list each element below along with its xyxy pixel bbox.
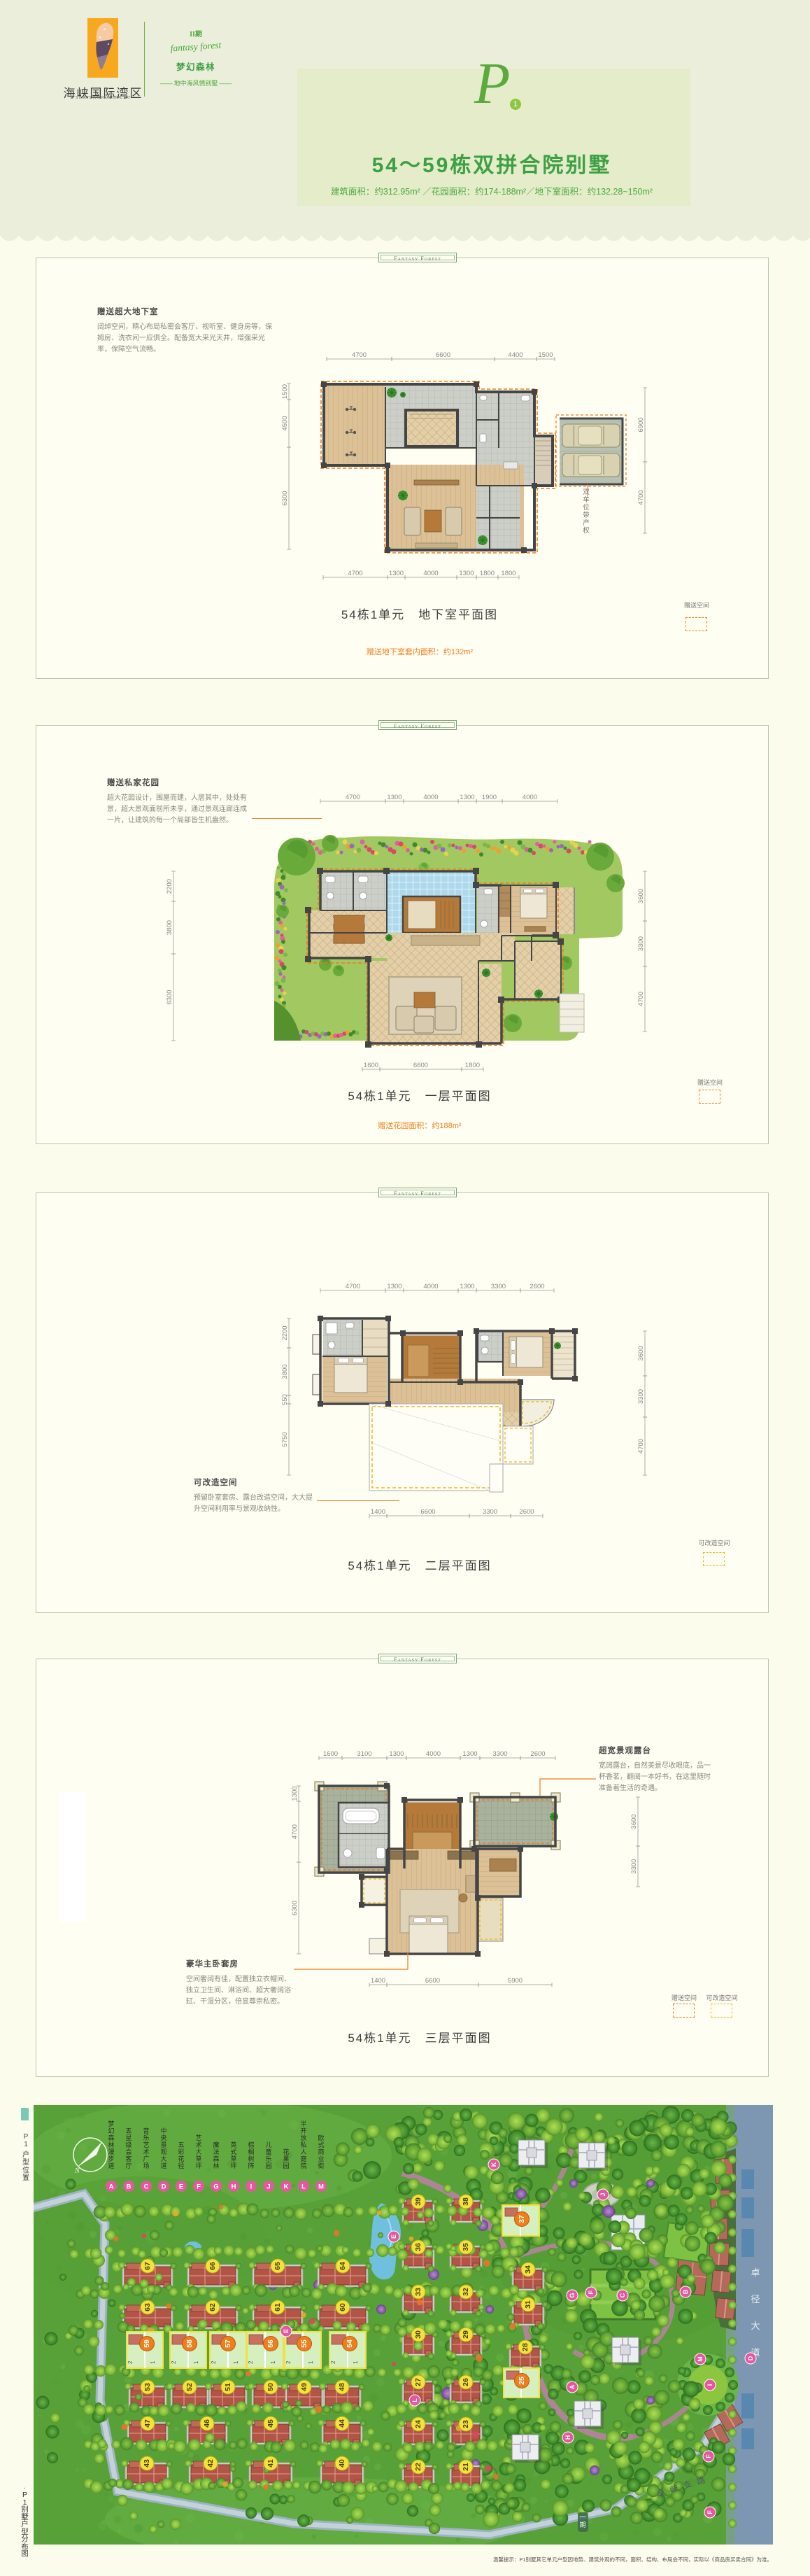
- svg-text:草: 草: [195, 2155, 201, 2162]
- svg-text:F: F: [706, 2510, 713, 2514]
- svg-text:1300: 1300: [389, 1750, 404, 1758]
- svg-text:坪: 坪: [230, 2162, 236, 2169]
- svg-text:森: 森: [108, 2134, 114, 2141]
- svg-text:1300: 1300: [291, 1786, 299, 1801]
- svg-text:4000: 4000: [423, 794, 438, 801]
- svg-text:一: 一: [579, 2514, 585, 2521]
- svg-text:园: 园: [283, 2162, 289, 2169]
- svg-text:4500: 4500: [281, 416, 289, 430]
- svg-text:4700: 4700: [348, 570, 362, 577]
- svg-text:3600: 3600: [637, 889, 645, 903]
- svg-text:术: 术: [143, 2148, 149, 2155]
- svg-text:25: 25: [518, 2377, 526, 2385]
- svg-text:厅: 厅: [125, 2162, 132, 2169]
- svg-text:59: 59: [143, 2339, 151, 2348]
- svg-text:1300: 1300: [387, 794, 402, 801]
- svg-text:K: K: [284, 2183, 289, 2191]
- svg-text:1300: 1300: [389, 570, 404, 577]
- svg-text:A: A: [569, 2384, 576, 2389]
- svg-text:E: E: [179, 2183, 183, 2191]
- svg-text:J: J: [267, 2183, 270, 2191]
- svg-text:2: 2: [330, 2360, 336, 2364]
- svg-text:5900: 5900: [508, 1977, 523, 1985]
- svg-text:2: 2: [127, 2360, 134, 2364]
- svg-text:B: B: [682, 2289, 689, 2294]
- svg-text:1400: 1400: [371, 1508, 385, 1516]
- svg-text:51: 51: [224, 2383, 232, 2391]
- svg-text:1400: 1400: [371, 1977, 385, 1985]
- svg-text:64: 64: [339, 2262, 347, 2270]
- svg-text:3300: 3300: [491, 1283, 506, 1290]
- svg-text:58: 58: [185, 2339, 194, 2348]
- svg-text:林: 林: [213, 2162, 219, 2169]
- svg-text:F: F: [588, 2290, 595, 2295]
- svg-text:道: 道: [160, 2162, 166, 2169]
- svg-text:4700: 4700: [291, 1824, 299, 1839]
- svg-text:6600: 6600: [413, 1062, 428, 1069]
- svg-text:业: 业: [318, 2155, 324, 2162]
- svg-text:4000: 4000: [423, 570, 438, 577]
- svg-text:A: A: [109, 2183, 114, 2191]
- svg-text:会: 会: [125, 2148, 132, 2155]
- svg-text:放: 放: [300, 2134, 306, 2141]
- svg-text:私: 私: [300, 2141, 306, 2148]
- svg-text:L: L: [301, 2183, 306, 2191]
- svg-text:60: 60: [339, 2303, 347, 2311]
- svg-text:1500: 1500: [281, 384, 289, 399]
- svg-text:艺: 艺: [195, 2134, 201, 2141]
- svg-text:42: 42: [206, 2459, 215, 2468]
- svg-text:4700: 4700: [637, 1439, 645, 1454]
- svg-text:央: 央: [160, 2134, 166, 2141]
- svg-text:1: 1: [233, 2360, 239, 2364]
- svg-text:G: G: [213, 2183, 218, 2191]
- svg-text:33: 33: [414, 2288, 422, 2296]
- svg-text:H: H: [564, 2435, 571, 2440]
- svg-text:1600: 1600: [323, 1750, 338, 1758]
- svg-text:35: 35: [462, 2243, 470, 2251]
- svg-text:童: 童: [265, 2148, 271, 2155]
- svg-text:星: 星: [125, 2134, 132, 2141]
- svg-text:4700: 4700: [637, 490, 645, 505]
- svg-text:1300: 1300: [460, 794, 474, 801]
- svg-text:法: 法: [213, 2148, 219, 2155]
- svg-text:阵: 阵: [248, 2162, 254, 2169]
- svg-text:E: E: [390, 2234, 397, 2239]
- svg-text:31: 31: [524, 2300, 532, 2309]
- svg-text:4700: 4700: [637, 992, 645, 1006]
- svg-text:1600: 1600: [364, 1062, 378, 1069]
- svg-text:半: 半: [300, 2120, 306, 2127]
- svg-text:观: 观: [160, 2148, 166, 2155]
- svg-text:大: 大: [751, 2321, 760, 2331]
- svg-text:式: 式: [318, 2141, 324, 2148]
- svg-text:29: 29: [462, 2330, 470, 2339]
- svg-text:森: 森: [213, 2155, 219, 2162]
- svg-text:大: 大: [160, 2155, 166, 2162]
- svg-text:24: 24: [414, 2420, 422, 2428]
- svg-text:3300: 3300: [637, 936, 645, 951]
- svg-text:1300: 1300: [462, 1750, 477, 1758]
- svg-text:M: M: [697, 2356, 704, 2362]
- svg-text:大: 大: [195, 2148, 201, 2155]
- svg-text:E: E: [283, 2329, 290, 2333]
- svg-text:F: F: [197, 2183, 201, 2191]
- svg-text:53: 53: [143, 2383, 152, 2391]
- svg-text:1: 1: [353, 2360, 359, 2364]
- svg-text:6300: 6300: [166, 990, 173, 1004]
- svg-text:1900: 1900: [482, 794, 497, 801]
- svg-text:魔: 魔: [213, 2141, 219, 2148]
- svg-text:卓: 卓: [751, 2267, 760, 2278]
- svg-text:3300: 3300: [492, 1750, 507, 1758]
- svg-text:38: 38: [462, 2197, 470, 2206]
- svg-text:G: G: [569, 2293, 576, 2297]
- svg-text:欧: 欧: [318, 2134, 324, 2141]
- svg-text:1300: 1300: [459, 570, 474, 577]
- svg-text:道: 道: [108, 2162, 114, 2169]
- svg-text:65: 65: [273, 2262, 282, 2270]
- svg-text:彩: 彩: [178, 2148, 184, 2155]
- svg-text:6300: 6300: [281, 491, 289, 505]
- svg-text:五: 五: [178, 2141, 184, 2148]
- svg-text:广: 广: [143, 2155, 149, 2162]
- svg-text:3800: 3800: [166, 920, 173, 935]
- svg-text:4000: 4000: [423, 1283, 438, 1290]
- svg-text:67: 67: [143, 2262, 152, 2270]
- svg-text:2: 2: [211, 2360, 217, 2364]
- svg-text:36: 36: [414, 2243, 422, 2251]
- svg-text:径: 径: [751, 2294, 760, 2304]
- svg-text:52: 52: [185, 2383, 194, 2391]
- svg-text:音: 音: [143, 2127, 149, 2134]
- svg-text:32: 32: [462, 2288, 470, 2296]
- svg-text:41: 41: [267, 2459, 275, 2468]
- svg-text:英: 英: [230, 2141, 236, 2148]
- svg-text:34: 34: [524, 2265, 532, 2274]
- svg-text:场: 场: [143, 2162, 149, 2169]
- svg-text:权: 权: [583, 526, 590, 535]
- svg-text:40: 40: [338, 2459, 346, 2468]
- svg-text:花: 花: [178, 2155, 184, 2162]
- svg-text:27: 27: [414, 2378, 422, 2386]
- svg-text:N: N: [74, 2167, 80, 2175]
- svg-text:1: 1: [150, 2360, 156, 2364]
- svg-text:L: L: [411, 2398, 418, 2402]
- svg-text:1: 1: [270, 2360, 276, 2364]
- svg-text:级: 级: [125, 2141, 132, 2148]
- svg-text:园: 园: [265, 2162, 271, 2169]
- svg-text:37: 37: [518, 2215, 526, 2223]
- svg-text:乐: 乐: [143, 2134, 149, 2141]
- svg-text:1500: 1500: [538, 351, 553, 359]
- svg-text:21: 21: [462, 2463, 470, 2471]
- svg-text:61: 61: [273, 2303, 282, 2311]
- svg-text:55: 55: [300, 2339, 308, 2348]
- svg-text:2200: 2200: [166, 879, 173, 894]
- svg-text:客: 客: [125, 2155, 132, 2162]
- svg-text:26: 26: [462, 2378, 470, 2386]
- svg-text:庭: 庭: [300, 2155, 306, 2162]
- svg-text:4700: 4700: [352, 351, 367, 359]
- svg-text:坪: 坪: [195, 2162, 201, 2169]
- svg-text:步: 步: [108, 2155, 114, 2162]
- svg-text:梦: 梦: [108, 2120, 114, 2127]
- svg-text:66: 66: [208, 2262, 217, 2270]
- svg-text:花: 花: [283, 2148, 289, 2155]
- svg-text:双: 双: [583, 488, 590, 496]
- svg-text:63: 63: [143, 2303, 152, 2311]
- svg-text:3300: 3300: [630, 1859, 638, 1873]
- svg-text:棕: 棕: [248, 2141, 254, 2148]
- svg-text:车: 车: [583, 495, 590, 504]
- svg-text:2: 2: [248, 2360, 254, 2364]
- svg-text:B: B: [127, 2183, 132, 2191]
- svg-text:54: 54: [346, 2339, 354, 2348]
- svg-text:草: 草: [230, 2155, 236, 2162]
- svg-text:树: 树: [248, 2155, 254, 2162]
- svg-text:中: 中: [160, 2127, 166, 2134]
- svg-text:45: 45: [267, 2419, 275, 2428]
- svg-text:22: 22: [414, 2463, 422, 2471]
- svg-text:产: 产: [583, 519, 590, 527]
- svg-text:I: I: [250, 2183, 253, 2191]
- svg-text:56: 56: [267, 2339, 275, 2348]
- svg-text:4700: 4700: [346, 794, 360, 801]
- svg-text:1800: 1800: [480, 570, 495, 577]
- svg-text:人: 人: [300, 2148, 306, 2155]
- svg-text:4000: 4000: [426, 1750, 441, 1758]
- svg-text:幻: 幻: [108, 2127, 114, 2134]
- svg-text:式: 式: [230, 2148, 236, 2155]
- svg-text:1800: 1800: [501, 570, 516, 577]
- svg-text:儿: 儿: [265, 2141, 271, 2148]
- svg-text:2: 2: [171, 2360, 177, 2364]
- svg-text:43: 43: [143, 2459, 151, 2468]
- svg-text:2600: 2600: [519, 1508, 534, 1516]
- svg-text:D: D: [162, 2183, 166, 2191]
- svg-text:3600: 3600: [630, 1814, 638, 1829]
- svg-text:39: 39: [414, 2197, 422, 2206]
- svg-text:乐: 乐: [265, 2155, 271, 2162]
- svg-text:景: 景: [160, 2141, 166, 2148]
- svg-text:50: 50: [267, 2383, 275, 2391]
- svg-text:28: 28: [521, 2343, 530, 2351]
- svg-text:6600: 6600: [420, 1508, 435, 1516]
- svg-text:M: M: [318, 2183, 324, 2191]
- svg-text:2200: 2200: [281, 1325, 289, 1340]
- svg-text:H: H: [232, 2183, 236, 2191]
- svg-text:C: C: [144, 2183, 149, 2191]
- svg-text:带: 带: [583, 512, 590, 519]
- svg-text:6600: 6600: [436, 351, 450, 359]
- svg-text:47: 47: [143, 2419, 152, 2428]
- svg-text:3600: 3600: [637, 1346, 645, 1360]
- svg-text:49: 49: [300, 2383, 308, 2391]
- svg-text:院: 院: [300, 2162, 306, 2169]
- svg-text:30: 30: [414, 2330, 422, 2339]
- svg-text:3100: 3100: [357, 1750, 371, 1758]
- svg-text:五: 五: [125, 2127, 132, 2134]
- svg-text:K: K: [490, 2162, 497, 2167]
- svg-text:商: 商: [318, 2148, 324, 2155]
- svg-text:2600: 2600: [530, 1283, 544, 1290]
- svg-text:术: 术: [195, 2141, 201, 2148]
- svg-text:1300: 1300: [460, 1283, 474, 1290]
- svg-text:3300: 3300: [483, 1508, 497, 1516]
- svg-text:C: C: [619, 2293, 626, 2297]
- svg-text:I: I: [706, 2384, 713, 2386]
- svg-text:48: 48: [338, 2383, 346, 2391]
- svg-text:1: 1: [308, 2360, 314, 2364]
- svg-text:6300: 6300: [291, 1901, 299, 1915]
- svg-text:街: 街: [318, 2162, 324, 2169]
- svg-text:44: 44: [338, 2419, 346, 2428]
- svg-text:D: D: [747, 2356, 754, 2360]
- svg-text:6900: 6900: [637, 417, 645, 432]
- svg-text:4000: 4000: [523, 794, 537, 801]
- svg-text:2: 2: [285, 2360, 292, 2364]
- svg-text:果: 果: [283, 2155, 289, 2162]
- svg-text:位: 位: [583, 503, 590, 512]
- svg-text:1: 1: [193, 2360, 199, 2364]
- svg-text:径: 径: [178, 2162, 184, 2169]
- svg-text:J: J: [599, 2193, 606, 2196]
- svg-text:4400: 4400: [508, 351, 523, 359]
- svg-text:23: 23: [462, 2420, 470, 2428]
- svg-text:林: 林: [108, 2141, 114, 2148]
- svg-text:3300: 3300: [637, 1389, 645, 1404]
- svg-text:6600: 6600: [425, 1977, 440, 1985]
- svg-text:62: 62: [208, 2303, 217, 2311]
- svg-text:1300: 1300: [387, 1283, 402, 1290]
- svg-text:F: F: [705, 2454, 712, 2458]
- svg-text:4700: 4700: [346, 1283, 360, 1290]
- svg-text:漫: 漫: [108, 2148, 114, 2155]
- svg-text:开: 开: [300, 2127, 306, 2134]
- svg-text:46: 46: [203, 2419, 211, 2428]
- svg-text:3800: 3800: [281, 1364, 289, 1379]
- svg-text:57: 57: [224, 2339, 232, 2348]
- svg-text:期: 期: [579, 2521, 585, 2528]
- svg-text:5750: 5750: [281, 1432, 289, 1447]
- svg-text:1800: 1800: [465, 1062, 480, 1069]
- svg-text:艺: 艺: [143, 2141, 149, 2148]
- svg-text:2600: 2600: [530, 1750, 545, 1758]
- svg-text:550: 550: [281, 1394, 289, 1405]
- svg-text:榈: 榈: [248, 2148, 254, 2155]
